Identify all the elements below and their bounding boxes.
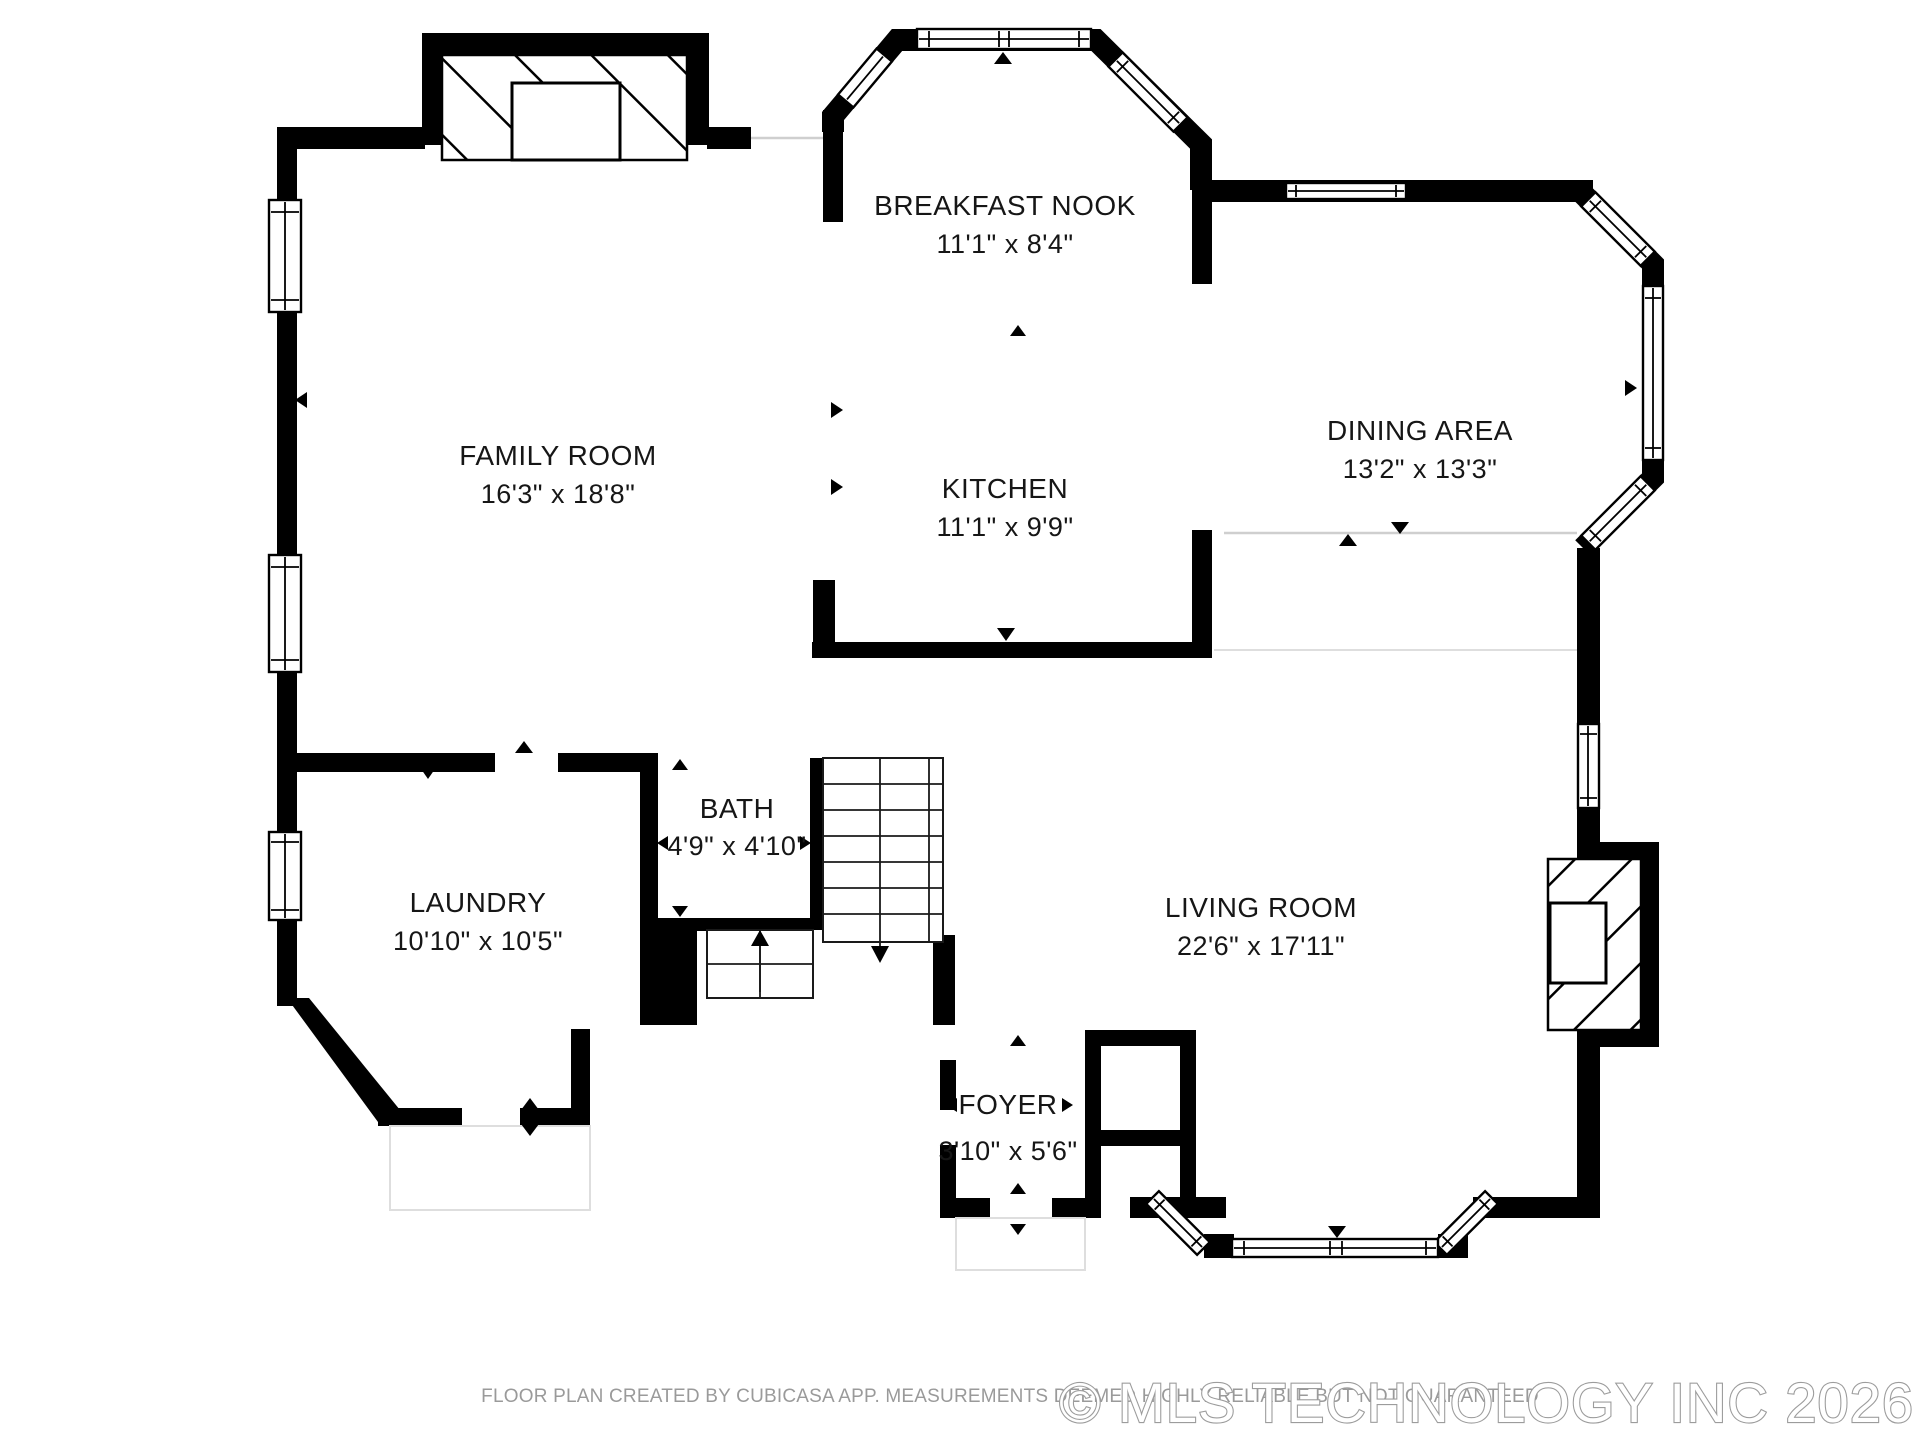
window — [917, 29, 1091, 49]
footer-watermark: © MLS TECHNOLOGY INC 2026 — [1059, 1371, 1914, 1434]
door-marker-icon — [1010, 1183, 1026, 1194]
firebox — [512, 83, 620, 160]
room-dims-bath: 4'9" x 4'10" — [667, 831, 806, 861]
window — [269, 555, 301, 672]
room-dims-family-room: 16'3" x 18'8" — [481, 479, 636, 509]
fireplace-frame — [1577, 1030, 1659, 1047]
wall — [1192, 530, 1212, 658]
room-label-laundry: LAUNDRY — [410, 887, 547, 918]
room-dims-foyer: 3'10" x 5'6" — [938, 1136, 1077, 1166]
door-marker-icon — [1010, 325, 1026, 336]
fireplace-frame — [1641, 842, 1659, 1047]
window — [1108, 52, 1187, 131]
room-label-living-room: LIVING ROOM — [1165, 892, 1357, 923]
room-dims-kitchen: 11'1" x 9'9" — [936, 512, 1073, 542]
wall — [1085, 1030, 1101, 1216]
firebox — [1550, 903, 1606, 983]
room-label-breakfast-nook: BREAKFAST NOOK — [874, 190, 1136, 221]
wall — [640, 753, 658, 930]
door-marker-icon — [672, 906, 688, 917]
door-marker-icon — [994, 52, 1012, 64]
door-marker-icon — [1328, 1226, 1346, 1238]
wall — [1577, 1047, 1600, 1211]
wall — [1180, 1030, 1196, 1146]
door-marker-icon — [831, 402, 843, 418]
wall — [571, 1029, 590, 1126]
room-dims-living-room: 22'6" x 17'11" — [1177, 931, 1345, 961]
door-marker-icon — [419, 766, 437, 779]
wall — [640, 930, 697, 1025]
wall — [813, 580, 835, 658]
door-marker-icon — [521, 1124, 539, 1136]
wall — [1180, 1146, 1196, 1218]
fireplace-frame — [687, 33, 709, 145]
wall — [285, 127, 425, 149]
wall — [1192, 150, 1212, 284]
door-marker-icon — [657, 836, 668, 850]
window — [1578, 724, 1599, 808]
room-label-family-room: FAMILY ROOM — [459, 440, 656, 471]
wall — [285, 753, 495, 772]
wall — [1204, 1234, 1234, 1258]
wall — [1085, 1030, 1196, 1046]
room-label-bath: BATH — [700, 793, 775, 824]
window — [1581, 476, 1655, 550]
door-marker-icon — [672, 759, 688, 770]
porch-outline — [390, 1126, 590, 1210]
window — [1643, 286, 1663, 460]
wall-diagonal — [287, 998, 400, 1122]
walls — [277, 40, 1653, 1270]
room-label-dining-area: DINING AREA — [1327, 415, 1513, 446]
window — [1581, 192, 1655, 266]
room-dims-breakfast-nook: 11'1" x 8'4" — [936, 229, 1073, 259]
wall — [933, 935, 955, 1025]
fireplace-frame — [422, 33, 709, 57]
window — [838, 49, 892, 108]
door-marker-icon — [1625, 380, 1637, 396]
wall — [1101, 1130, 1196, 1146]
door-marker-icon — [997, 628, 1015, 641]
door-marker-icon — [1339, 534, 1357, 546]
window — [269, 832, 301, 920]
window — [1232, 1239, 1438, 1257]
fireplace-right — [1548, 842, 1659, 1047]
door-marker-icon — [1010, 1035, 1026, 1046]
door-marker-icon — [831, 479, 843, 495]
door-marker-icon — [515, 741, 533, 753]
door-marker-icon — [521, 1098, 539, 1110]
stair-down-arrow — [871, 946, 889, 963]
wall — [378, 1108, 462, 1126]
door-marker-icon — [1062, 1098, 1073, 1112]
room-label-foyer: FOYER — [959, 1089, 1058, 1120]
room-label-kitchen: KITCHEN — [942, 473, 1068, 504]
footer: FLOOR PLAN CREATED BY CUBICASA APP. MEAS… — [481, 1371, 1914, 1434]
wall — [812, 642, 1198, 658]
door-marker-icon — [1010, 1224, 1026, 1235]
wall — [707, 127, 751, 149]
window — [1286, 183, 1406, 199]
room-dims-dining-area: 13'2" x 13'3" — [1343, 454, 1498, 484]
fireplace-top — [422, 33, 709, 160]
window — [269, 200, 301, 312]
floor-plan: BREAKFAST NOOK 11'1" x 8'4" FAMILY ROOM … — [0, 0, 1920, 1440]
room-dims-laundry: 10'10" x 10'5" — [393, 926, 563, 956]
